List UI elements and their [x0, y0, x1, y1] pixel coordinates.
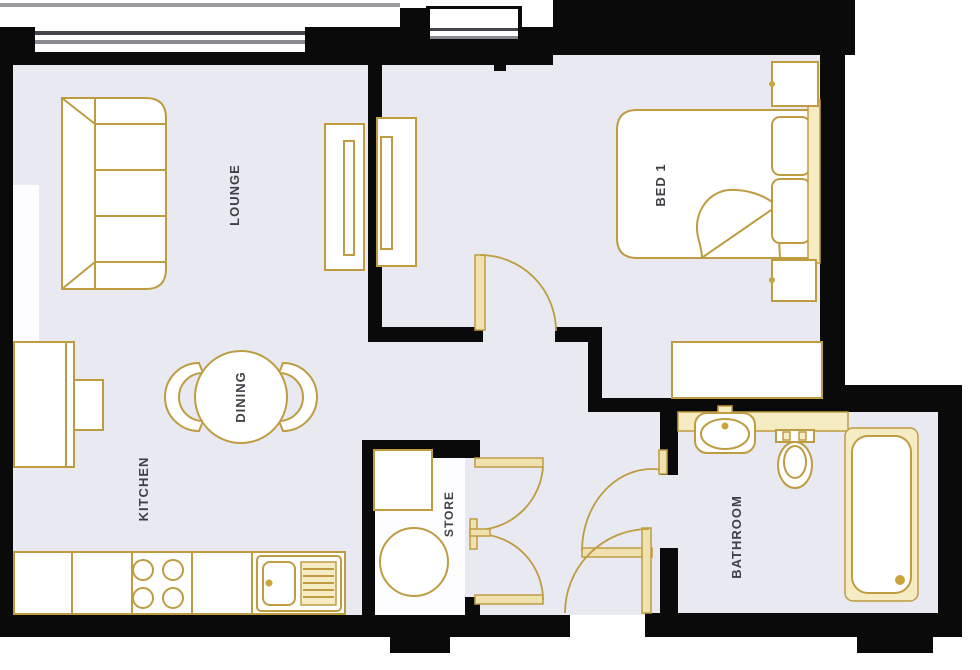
pillow-bottom	[772, 179, 810, 243]
floor-plan-svg: LOUNGE BED 1 DINING KITCHEN STORE BATHRO…	[0, 0, 980, 670]
label-bathroom: BATHROOM	[729, 495, 744, 579]
sofa	[62, 98, 166, 289]
bathtub	[845, 428, 918, 601]
kitchen-sink	[257, 556, 341, 611]
bedroom-door-leaf	[475, 255, 485, 330]
headboard	[808, 100, 820, 263]
window-lounge	[35, 27, 305, 52]
wall-step-store	[390, 637, 450, 653]
wall-bedroom-bottom-left	[368, 327, 483, 342]
bathtub-drain	[895, 575, 905, 585]
bed	[617, 100, 820, 263]
store-cylinder	[380, 528, 448, 596]
window-bedroom-frame-line	[430, 28, 518, 31]
wall-bottom-right	[645, 613, 938, 637]
floor-plan: LOUNGE BED 1 DINING KITCHEN STORE BATHRO…	[0, 0, 980, 670]
duvet-fold	[697, 190, 780, 258]
balcony-edge-line	[0, 3, 400, 7]
wall-bathroom-top	[588, 398, 962, 412]
nightstand-top	[769, 62, 818, 106]
window-lounge-glass	[35, 27, 305, 52]
store-door-top-leaf	[475, 458, 543, 467]
label-bed1: BED 1	[653, 163, 668, 206]
wall-right-bathroom	[938, 412, 962, 637]
wall-bottom-left	[0, 615, 570, 637]
label-dining: DINING	[233, 371, 248, 423]
store-door-stop-arm	[470, 529, 490, 536]
wall-nib	[400, 8, 428, 28]
window-bedroom	[426, 6, 522, 46]
bedroom-desk	[672, 342, 822, 398]
wall-bathroom-left-bottom	[660, 548, 678, 615]
wall-right-bedroom	[820, 55, 845, 390]
store-shelf	[374, 450, 432, 510]
label-store: STORE	[442, 491, 456, 537]
label-kitchen: KITCHEN	[136, 457, 151, 522]
wall-hall-vertical	[588, 342, 602, 402]
basin	[695, 406, 755, 453]
window-lounge-glazing-line	[35, 40, 305, 44]
front-door-leaf	[642, 528, 651, 613]
wall-bedroom-bottom-right	[555, 327, 602, 342]
label-lounge: LOUNGE	[227, 164, 242, 226]
dresser-unit	[377, 118, 416, 266]
wall-top-bedroom	[553, 0, 855, 55]
toilet	[776, 430, 814, 488]
window-bedroom-gap	[430, 31, 518, 36]
window-bedroom-glass	[430, 9, 518, 28]
wall-left	[0, 27, 13, 637]
window-lounge-frame-line	[35, 31, 305, 35]
tv-unit	[325, 124, 364, 270]
window-bedroom-glazing-line	[430, 36, 518, 39]
store-door-bottom-leaf	[475, 595, 543, 604]
bathroom-door-jamb	[659, 450, 667, 474]
nightstand-bottom	[769, 260, 816, 301]
tap-icon	[266, 580, 273, 587]
wall-step-bathroom	[857, 637, 933, 653]
wall-bathroom-top-chunk	[820, 385, 962, 399]
pillow-top	[772, 117, 810, 175]
wall-stub	[494, 62, 506, 71]
